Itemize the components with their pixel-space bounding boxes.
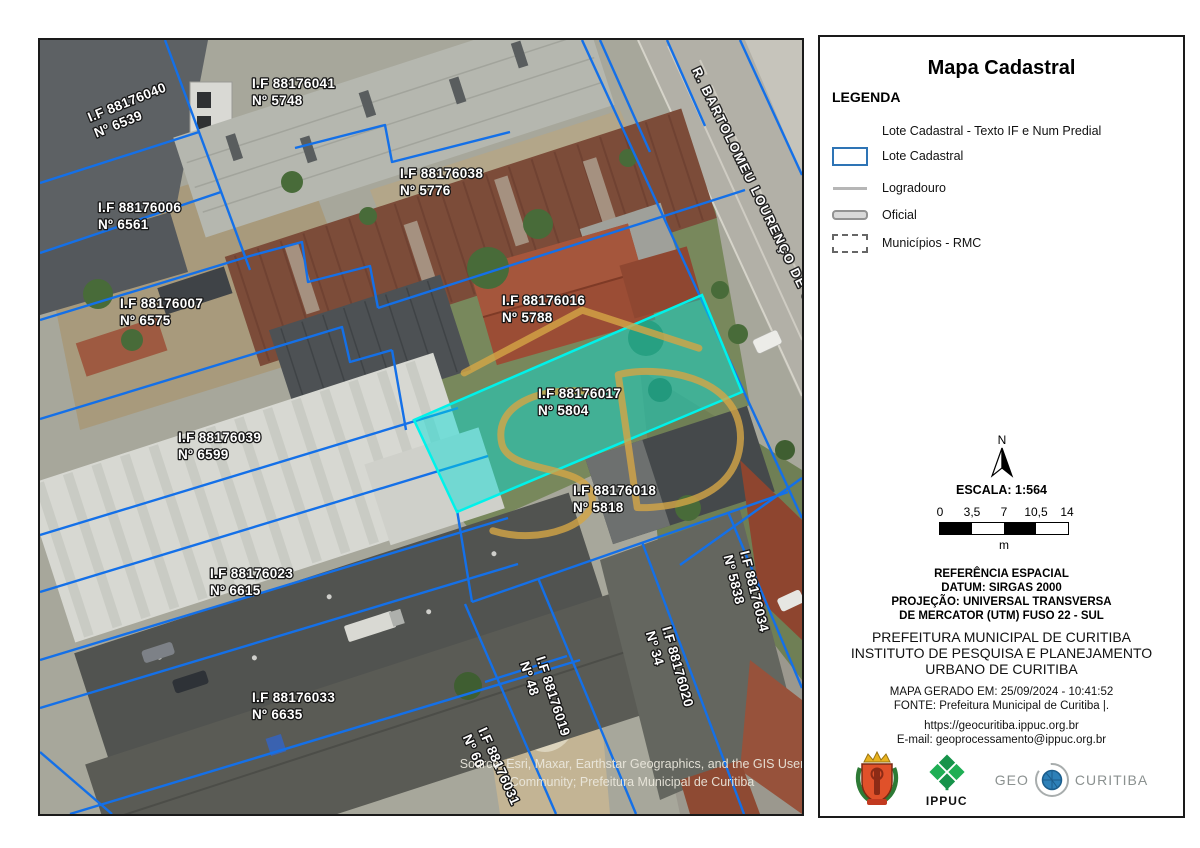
generation-info: MAPA GERADO EM: 25/09/2024 - 10:41:52 FO… bbox=[820, 685, 1183, 713]
svg-text:Nº 6599: Nº 6599 bbox=[178, 447, 229, 462]
svg-text:Nº 5788: Nº 5788 bbox=[502, 310, 553, 325]
legend-item-oficial: Oficial bbox=[832, 205, 917, 225]
svg-text:N: N bbox=[997, 433, 1006, 447]
scalebar-unit: m bbox=[939, 538, 1069, 552]
geocuritiba-logo: GEO CURITIBA bbox=[995, 761, 1148, 799]
svg-text:I.F 88176023: I.F 88176023 bbox=[210, 566, 293, 581]
svg-text:Nº 5776: Nº 5776 bbox=[400, 183, 451, 198]
road-line-icon bbox=[833, 187, 867, 190]
svg-text:I.F 88176038: I.F 88176038 bbox=[400, 166, 483, 181]
svg-text:Source: Esri, Maxar, Earthstar: Source: Esri, Maxar, Earthstar Geographi… bbox=[460, 757, 802, 771]
legend-item-municipios: Municípios - RMC bbox=[832, 233, 981, 253]
legend-heading: LEGENDA bbox=[832, 89, 900, 105]
svg-text:I.F 88176016: I.F 88176016 bbox=[502, 293, 585, 308]
svg-text:Nº 6575: Nº 6575 bbox=[120, 313, 171, 328]
lot-rect-icon bbox=[832, 147, 868, 166]
globe-icon bbox=[1033, 761, 1071, 799]
scalebar-blocks bbox=[939, 522, 1069, 535]
page-title: Mapa Cadastral bbox=[820, 57, 1183, 80]
svg-text:Nº 5748: Nº 5748 bbox=[252, 93, 303, 108]
curitiba-crest-logo bbox=[855, 750, 899, 811]
cased-line-icon bbox=[832, 210, 868, 220]
svg-text:Nº 6615: Nº 6615 bbox=[210, 583, 261, 598]
svg-text:Nº 6635: Nº 6635 bbox=[252, 707, 303, 722]
svg-text:I.F 88176039: I.F 88176039 bbox=[178, 430, 261, 445]
svg-text:Nº 5804: Nº 5804 bbox=[538, 403, 589, 418]
website-url: https://geocuritiba.ippuc.org.br bbox=[820, 719, 1183, 733]
svg-text:I.F 88176018: I.F 88176018 bbox=[573, 483, 656, 498]
contact-info: https://geocuritiba.ippuc.org.br E-mail:… bbox=[820, 719, 1183, 747]
spatial-reference: REFERÊNCIA ESPACIAL DATUM: SIRGAS 2000 P… bbox=[820, 567, 1183, 623]
svg-text:Nº 6561: Nº 6561 bbox=[98, 217, 149, 232]
svg-text:Nº 5818: Nº 5818 bbox=[573, 500, 624, 515]
svg-text:I.F 88176006: I.F 88176006 bbox=[98, 200, 181, 215]
scalebar-tick: 3,5 bbox=[964, 505, 981, 519]
map-canvas: I.F 88176040Nº 6539 I.F 88176041Nº 5748 … bbox=[38, 38, 804, 816]
legend-item-lote: Lote Cadastral bbox=[832, 146, 963, 166]
svg-text:I.F 88176007: I.F 88176007 bbox=[120, 296, 203, 311]
dashed-rect-icon bbox=[832, 234, 868, 253]
scalebar: 0 3,5 7 10,5 14 m bbox=[939, 505, 1069, 553]
legend-item-texto: Lote Cadastral - Texto IF e Num Predial bbox=[832, 121, 1101, 141]
legend-item-logradouro: Logradouro bbox=[832, 178, 946, 198]
scalebar-tick: 7 bbox=[1001, 505, 1008, 519]
generated-timestamp: MAPA GERADO EM: 25/09/2024 - 10:41:52 bbox=[820, 685, 1183, 699]
organization: PREFEITURA MUNICIPAL DE CURITIBA INSTITU… bbox=[820, 629, 1183, 677]
svg-text:Community; Prefeitura Municipa: Community; Prefeitura Municipal de Curit… bbox=[510, 775, 755, 789]
ippuc-logo: IPPUC bbox=[925, 753, 969, 808]
svg-text:I.F 88176033: I.F 88176033 bbox=[252, 690, 335, 705]
svg-text:I.F 88176017: I.F 88176017 bbox=[538, 386, 621, 401]
logos-row: IPPUC GEO CURITIBA bbox=[820, 749, 1183, 811]
scalebar-tick: 0 bbox=[937, 505, 944, 519]
source-line: FONTE: Prefeitura Municipal de Curitiba … bbox=[820, 699, 1183, 713]
info-panel: Mapa Cadastral LEGENDA Lote Cadastral - … bbox=[818, 35, 1185, 818]
svg-text:I.F 88176041: I.F 88176041 bbox=[252, 76, 335, 91]
scalebar-tick: 14 bbox=[1060, 505, 1073, 519]
scale-text: ESCALA: 1:564 bbox=[820, 483, 1183, 497]
scalebar-tick: 10,5 bbox=[1024, 505, 1047, 519]
north-arrow: N bbox=[820, 432, 1183, 485]
email-address: E-mail: geoprocessamento@ippuc.org.br bbox=[820, 733, 1183, 747]
